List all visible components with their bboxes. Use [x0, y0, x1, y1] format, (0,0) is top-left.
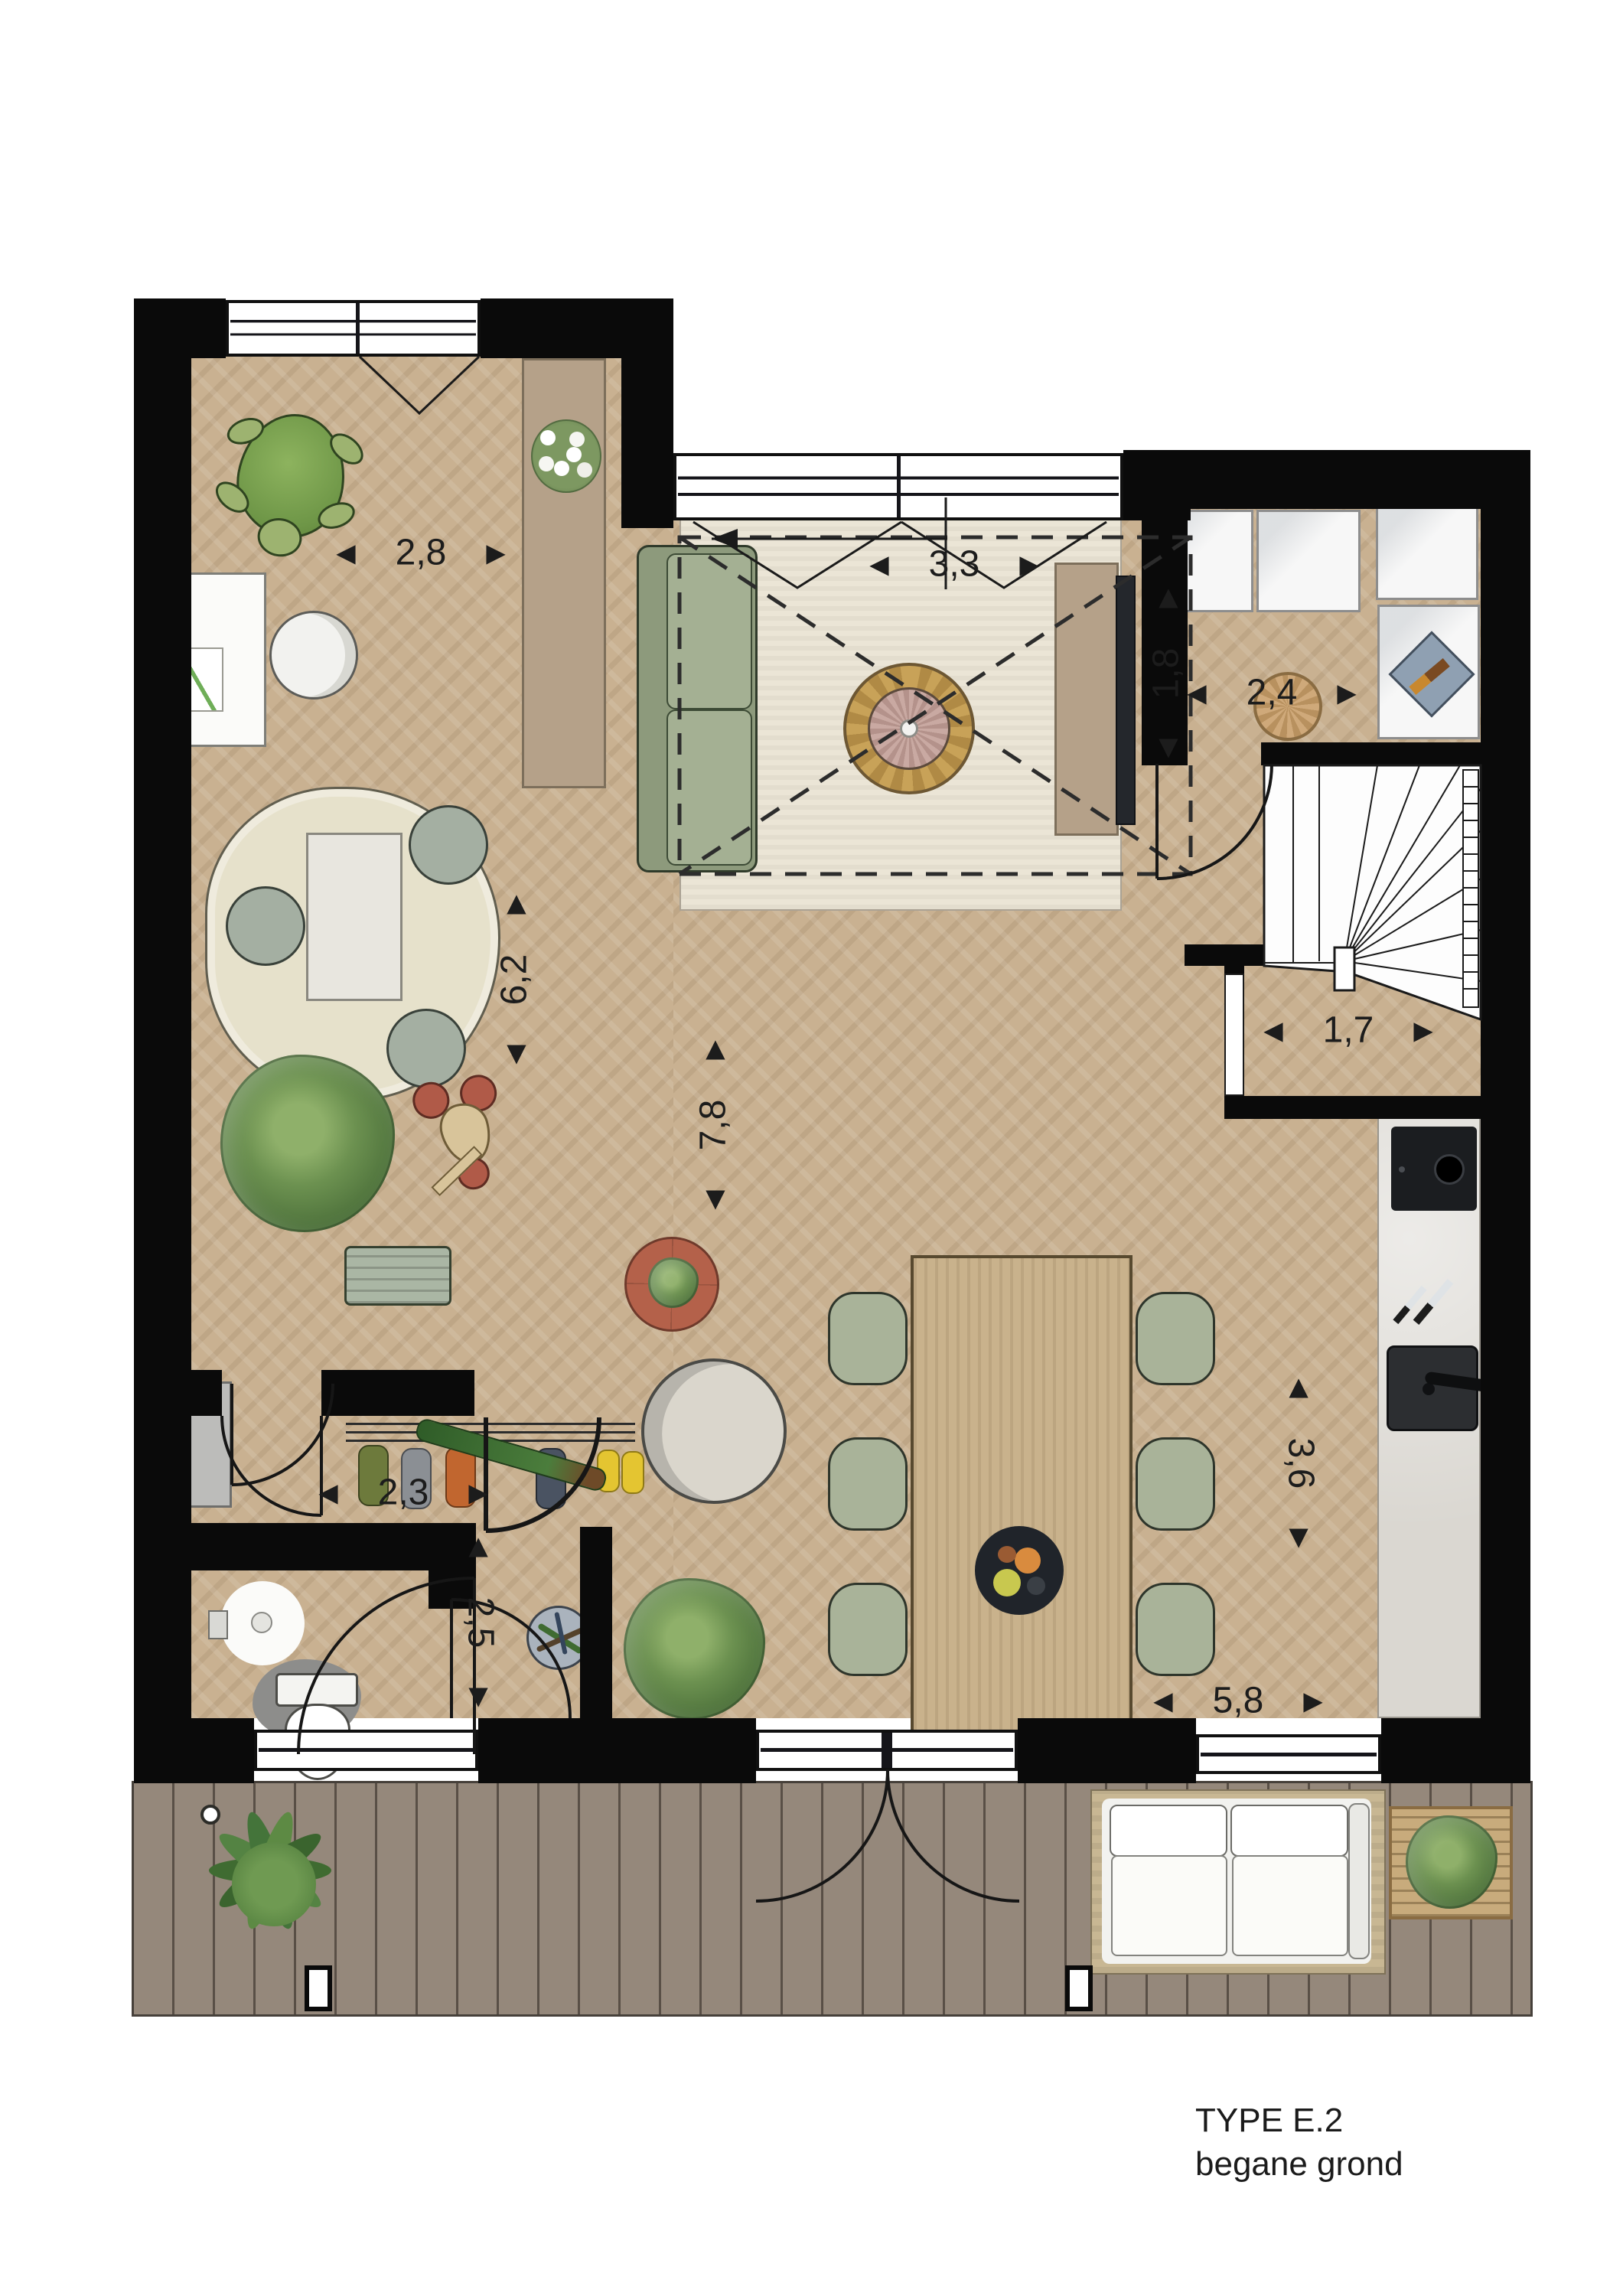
arrow-right-icon: ▶ [468, 1688, 494, 1707]
dim-hall-depth: ◀ 2,5 ▶ [460, 1538, 502, 1707]
arrow-right-icon: ▶ [701, 1040, 726, 1059]
dim-utility-depth: ◀ 1,8 ▶ [1146, 589, 1188, 758]
arrow-right-icon: ▶ [1019, 552, 1038, 577]
arrow-left-icon: ◀ [1263, 1018, 1282, 1043]
arrow-left-icon: ◀ [1154, 739, 1179, 758]
arrow-left-icon: ◀ [336, 540, 355, 566]
arrow-right-icon: ▶ [1337, 680, 1356, 706]
arrow-right-icon: ▶ [1413, 1018, 1432, 1043]
dim-living-width: ◀ 3,3 ▶ [869, 543, 1039, 585]
arrow-right-icon: ▶ [1154, 589, 1179, 608]
arrow-right-icon: ▶ [468, 1480, 487, 1505]
floorplan-page: ◀ 2,8 ▶ ◀ 3,3 ▶ ◀ 2,4 ▶ ◀ 1,8 ▶ ◀ 6,2 ▶ … [0, 0, 1623, 2296]
dim-dining-width: ◀ 5,8 ▶ [1153, 1680, 1323, 1722]
dim-hall-width: ◀ 2,3 ▶ [318, 1472, 488, 1514]
arrow-right-icon: ▶ [486, 540, 505, 566]
arrow-right-icon: ▶ [1303, 1688, 1322, 1714]
dim-kitchen-depth: ◀ 3,6 ▶ [1280, 1378, 1322, 1548]
arrow-right-icon: ▶ [502, 895, 527, 914]
arrow-left-icon: ◀ [1153, 1688, 1172, 1714]
arrow-right-icon: ▶ [1289, 1528, 1314, 1548]
plan-type-label: TYPE E.2 [1195, 2099, 1403, 2142]
arrow-left-icon: ◀ [1187, 680, 1206, 706]
arrow-left-icon: ◀ [1289, 1378, 1314, 1397]
arrow-left-icon: ◀ [468, 1538, 494, 1557]
vide-dashed-outline [680, 537, 1191, 874]
plan-linework [0, 0, 1623, 2296]
dim-main-depth: ◀ 7,8 ▶ [693, 1040, 735, 1210]
dim-study-width: ◀ 2,8 ▶ [336, 532, 506, 574]
arrow-left-icon: ◀ [502, 1045, 527, 1064]
arrow-left-icon: ◀ [318, 1480, 337, 1505]
arrow-left-icon: ◀ [701, 1190, 726, 1209]
dim-left-zone-depth: ◀ 6,2 ▶ [494, 895, 536, 1065]
dim-utility-width: ◀ 2,4 ▶ [1187, 672, 1357, 714]
door-swings [222, 764, 1272, 1901]
arrow-left-icon: ◀ [869, 552, 888, 577]
dim-stair-closet-width: ◀ 1,7 ▶ [1263, 1009, 1433, 1052]
winder-staircase [1264, 765, 1481, 1019]
plan-title: TYPE E.2 begane grond [1195, 2099, 1403, 2186]
plan-floor-label: begane grond [1195, 2142, 1403, 2186]
